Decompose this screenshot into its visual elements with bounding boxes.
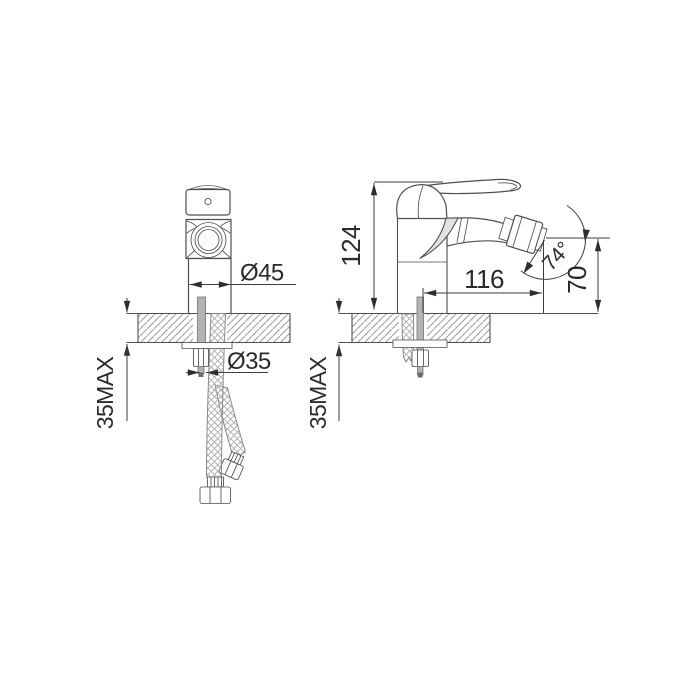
dim-74-arrow-a [581,229,589,242]
side-washer-plate [393,340,447,348]
side-rod-tip-end [418,373,423,378]
front-hose-main-nut [200,487,231,504]
dim-116-label: 116 [464,264,504,294]
faucet-dimension-drawing: Ø45 Ø35 35MAX [0,0,700,700]
front-hose-right-nut [218,450,247,480]
front-base-column [189,259,232,314]
dim-74-arrow-b [521,262,534,276]
dim-35max-side-label: 35MAX [305,357,331,430]
front-handle-block [186,190,230,216]
dim-124-label: 124 [336,225,366,267]
dim-70-label: 70 [562,266,592,294]
front-view [127,186,290,504]
side-aerator [497,212,548,255]
front-rod-tip-end [199,373,204,378]
front-mounting-nut [194,349,209,367]
side-countertop [339,314,598,343]
side-mounting-nut [412,350,429,367]
dim-35max-front-label: 35MAX [92,357,118,430]
dim-35-label: Ø35 [227,348,271,375]
front-aerator-circle [198,230,219,251]
front-washer-plate [182,343,232,349]
technical-drawing-canvas: Ø45 Ø35 35MAX [0,0,700,700]
dim-45-label: Ø45 [240,260,284,287]
front-countertop [127,314,290,343]
